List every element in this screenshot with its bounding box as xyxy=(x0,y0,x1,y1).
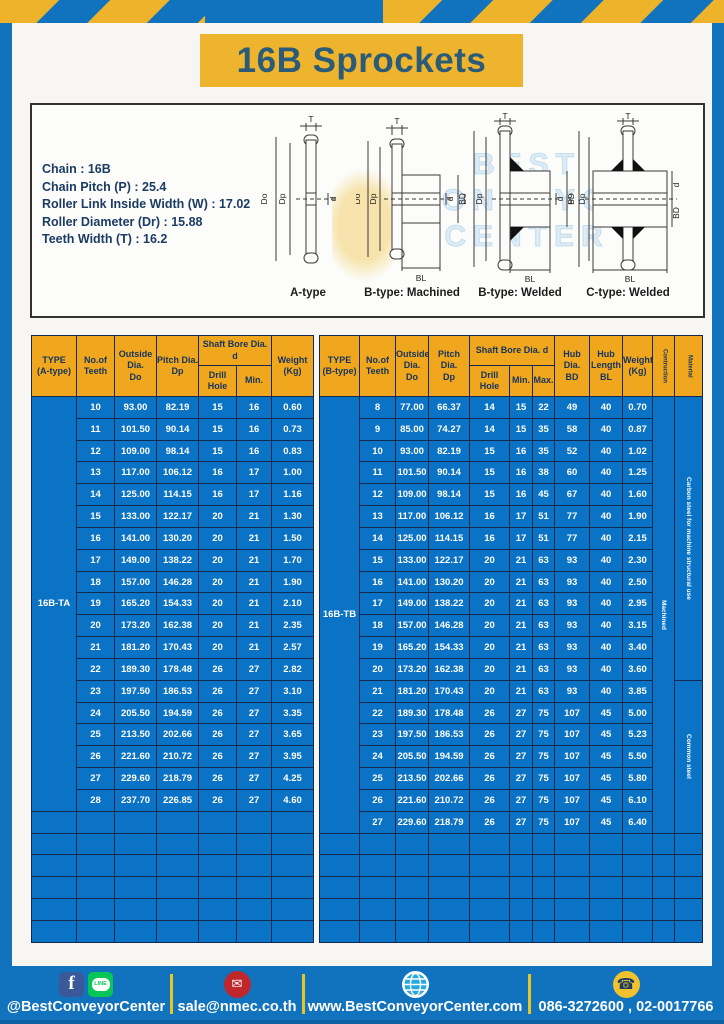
table-row: 18157.00146.2820216393403.15 xyxy=(320,615,703,637)
cell: 26 xyxy=(199,658,237,680)
cell: 3.15 xyxy=(623,615,653,637)
b-type-machined-drawing: T Do Dp d BD BL xyxy=(356,113,468,285)
type-cell: 16B-TA xyxy=(32,397,77,812)
cell: 4.25 xyxy=(272,768,314,790)
header-line: No.of xyxy=(360,355,395,366)
cell xyxy=(77,920,115,942)
cell: 14 xyxy=(77,484,115,506)
cell: 2.50 xyxy=(623,571,653,593)
cell: 186.53 xyxy=(429,724,470,746)
construction-cell: Machined xyxy=(653,397,675,834)
cell xyxy=(533,855,555,877)
cell: 16 xyxy=(199,484,237,506)
cell: 35 xyxy=(533,418,555,440)
dim-label-do: Do xyxy=(464,193,468,204)
cell: 2.15 xyxy=(623,527,653,549)
cell: 1.00 xyxy=(272,462,314,484)
cell: 205.50 xyxy=(115,702,157,724)
cell: 141.00 xyxy=(396,571,429,593)
cell: 93.00 xyxy=(396,440,429,462)
cell xyxy=(115,833,157,855)
header-line: (A-type) xyxy=(32,366,76,377)
footer-website[interactable]: www.BestConveyorCenter.com xyxy=(302,966,528,1024)
cell: 25 xyxy=(360,768,396,790)
footer-email[interactable]: ✉ sale@nmec.co.th xyxy=(172,966,302,1024)
cell: 75 xyxy=(533,811,555,833)
dim-label-t: T xyxy=(502,113,507,121)
cell xyxy=(653,877,675,899)
cell: 14 xyxy=(470,397,510,419)
cell xyxy=(533,920,555,942)
cell xyxy=(396,833,429,855)
cell: 19 xyxy=(77,593,115,615)
dim-label-bl: BL xyxy=(625,274,636,284)
cell: 26 xyxy=(470,702,510,724)
cell: 107 xyxy=(555,789,590,811)
header-line: Pitch Dia. xyxy=(429,349,469,372)
cell: 40 xyxy=(590,440,623,462)
cell: 157.00 xyxy=(115,571,157,593)
cell: 40 xyxy=(590,615,623,637)
cell: 21 xyxy=(510,680,533,702)
cell: 16 xyxy=(470,527,510,549)
cell xyxy=(590,899,623,921)
cell: 21 xyxy=(237,637,272,659)
cell: 12 xyxy=(77,440,115,462)
cell: 93 xyxy=(555,593,590,615)
cell: 16 xyxy=(77,527,115,549)
cell: 186.53 xyxy=(157,680,199,702)
cell xyxy=(653,855,675,877)
cell: 1.02 xyxy=(623,440,653,462)
cell xyxy=(533,833,555,855)
cell xyxy=(653,833,675,855)
cell: 149.00 xyxy=(396,593,429,615)
cell xyxy=(115,877,157,899)
cell: 107 xyxy=(555,724,590,746)
b-table-header: TYPE(B-type) No.ofTeeth OutsideDia.Do Pi… xyxy=(320,336,703,397)
cell: 15 xyxy=(510,418,533,440)
cell: 20 xyxy=(470,658,510,680)
cell: 82.19 xyxy=(157,397,199,419)
empty-row xyxy=(32,811,314,833)
cell: 17 xyxy=(510,527,533,549)
cell: 0.87 xyxy=(623,418,653,440)
col-header-shaft-bore: Shaft Bore Dia. d xyxy=(199,336,272,366)
header-line: Do xyxy=(115,372,156,383)
cell xyxy=(272,899,314,921)
diagram-caption: B-type: Welded xyxy=(464,287,576,299)
header-line: Hub Dia. xyxy=(555,349,589,372)
cell: 40 xyxy=(590,637,623,659)
cell: 51 xyxy=(533,527,555,549)
cell: 210.72 xyxy=(157,746,199,768)
cell xyxy=(77,877,115,899)
cell: 63 xyxy=(533,549,555,571)
cell xyxy=(429,855,470,877)
table-row: 25213.50202.66262775107455.80 xyxy=(320,768,703,790)
cell: 101.50 xyxy=(396,462,429,484)
cell: 1.70 xyxy=(272,549,314,571)
dim-label-do: Do xyxy=(259,193,269,204)
cell xyxy=(396,877,429,899)
cell: 125.00 xyxy=(396,527,429,549)
cell: 45 xyxy=(590,768,623,790)
cell: 77 xyxy=(555,527,590,549)
cell: 14 xyxy=(360,527,396,549)
cell: 1.90 xyxy=(623,506,653,528)
cell: 157.00 xyxy=(396,615,429,637)
c-type-welded-drawing: T Do Dp d BD xyxy=(569,113,687,285)
cell: 18 xyxy=(77,571,115,593)
cell: 63 xyxy=(533,615,555,637)
cell: 19 xyxy=(360,637,396,659)
cell: 21 xyxy=(510,549,533,571)
cell: 40 xyxy=(590,549,623,571)
col-header-max: Max. xyxy=(533,366,555,397)
cell xyxy=(396,855,429,877)
cell: 3.40 xyxy=(623,637,653,659)
table-row: 1093.0082.1915163552401.02 xyxy=(320,440,703,462)
phone-numbers[interactable]: 086-3272600 , 02-0017766 xyxy=(539,999,714,1015)
cell xyxy=(510,833,533,855)
cell: 189.30 xyxy=(115,658,157,680)
col-header-outside-dia: OutsideDia.Do xyxy=(115,336,157,397)
cell xyxy=(32,877,77,899)
col-header-type: TYPE(B-type) xyxy=(320,336,360,397)
cell: 93.00 xyxy=(115,397,157,419)
cell: 162.38 xyxy=(429,658,470,680)
cell: 197.50 xyxy=(396,724,429,746)
cell: 170.43 xyxy=(429,680,470,702)
cell: 45 xyxy=(590,724,623,746)
b-type-machined-diagram: T Do Dp d BD BL xyxy=(356,113,468,299)
cell xyxy=(533,899,555,921)
catalog-page: 16B Sprockets BEST CONVEYOR CENTER Chain… xyxy=(0,0,724,1024)
cell: 51 xyxy=(533,506,555,528)
cell: 93 xyxy=(555,637,590,659)
table-row: 14125.00114.1516175177402.15 xyxy=(320,527,703,549)
cell xyxy=(237,811,272,833)
cell xyxy=(470,855,510,877)
phone-icon[interactable]: ☎ xyxy=(613,971,640,998)
empty-row xyxy=(320,877,703,899)
cell xyxy=(429,899,470,921)
a-table-header: TYPE(A-type) No.ofTeeth OutsideDia.Do Pi… xyxy=(32,336,314,397)
cell xyxy=(320,877,360,899)
empty-row xyxy=(32,920,314,942)
table-row: 17149.00138.2220216393402.95 xyxy=(320,593,703,615)
cell: 154.33 xyxy=(157,593,199,615)
chain-specs: Chain : 16B Chain Pitch (P) : 25.4 Rolle… xyxy=(42,161,250,249)
header-line: TYPE xyxy=(320,355,359,366)
cell xyxy=(157,833,199,855)
cell: 6.40 xyxy=(623,811,653,833)
col-header-min: Min. xyxy=(510,366,533,397)
cell: 75 xyxy=(533,702,555,724)
cell xyxy=(272,811,314,833)
cell: 26 xyxy=(199,789,237,811)
cell: 26 xyxy=(470,768,510,790)
cell xyxy=(237,855,272,877)
cell xyxy=(77,855,115,877)
cell: 27 xyxy=(237,658,272,680)
footer-contact-bar: f LINE @BestConveyorCenter ✉ sale@nmec.c… xyxy=(0,966,724,1024)
cell: 27 xyxy=(510,724,533,746)
cell: 1.90 xyxy=(272,571,314,593)
globe-icon[interactable] xyxy=(402,971,429,998)
cell: 20 xyxy=(199,615,237,637)
cell: 1.30 xyxy=(272,506,314,528)
cell xyxy=(510,920,533,942)
cell: 20 xyxy=(470,615,510,637)
cell xyxy=(653,899,675,921)
cell: 20 xyxy=(470,637,510,659)
cell xyxy=(510,899,533,921)
cell xyxy=(157,877,199,899)
cell: 3.65 xyxy=(272,724,314,746)
cell xyxy=(590,833,623,855)
cell: 17 xyxy=(237,462,272,484)
empty-row xyxy=(320,855,703,877)
table-row: 15133.00122.1720216393402.30 xyxy=(320,549,703,571)
header-line: Teeth xyxy=(77,366,114,377)
cell: 63 xyxy=(533,658,555,680)
cell xyxy=(237,833,272,855)
cell xyxy=(623,877,653,899)
material-cell: Common steel xyxy=(675,680,703,833)
dim-label-do: Do xyxy=(356,193,362,204)
line-icon[interactable]: LINE xyxy=(88,972,113,997)
facebook-icon[interactable]: f xyxy=(59,972,84,997)
cell xyxy=(360,899,396,921)
cell: 125.00 xyxy=(115,484,157,506)
empty-row xyxy=(32,855,314,877)
cell: 15 xyxy=(199,440,237,462)
header-line: Outside xyxy=(115,349,156,360)
dim-label-t: T xyxy=(625,113,630,121)
header-line: (B-type) xyxy=(320,366,359,377)
cell: 10 xyxy=(360,440,396,462)
cell xyxy=(396,920,429,942)
cell: 45 xyxy=(590,702,623,724)
cell: 67 xyxy=(555,484,590,506)
header-line: Dia. xyxy=(396,360,428,371)
cell xyxy=(590,855,623,877)
cell: 11 xyxy=(77,418,115,440)
cell: 4.60 xyxy=(272,789,314,811)
cell: 21 xyxy=(237,615,272,637)
email-address[interactable]: sale@nmec.co.th xyxy=(178,999,297,1015)
cell xyxy=(623,920,653,942)
cell: 21 xyxy=(510,615,533,637)
cell: 27 xyxy=(237,746,272,768)
dim-label-d: d xyxy=(555,196,565,201)
bottom-edge-line xyxy=(0,1020,724,1024)
cell: 5.80 xyxy=(623,768,653,790)
footer-social[interactable]: f LINE @BestConveyorCenter xyxy=(0,966,172,1024)
cell: 3.10 xyxy=(272,680,314,702)
diagram-caption: C-type: Welded xyxy=(569,287,687,299)
cell: 26 xyxy=(199,680,237,702)
col-header-weight: Weight(Kg) xyxy=(623,336,653,397)
cell: 146.28 xyxy=(429,615,470,637)
cell: 117.00 xyxy=(396,506,429,528)
cell: 173.20 xyxy=(115,615,157,637)
table-row: 21181.20170.4320216393403.85Common steel xyxy=(320,680,703,702)
cell: 8 xyxy=(360,397,396,419)
cell xyxy=(555,899,590,921)
cell xyxy=(115,899,157,921)
cell: 21 xyxy=(237,549,272,571)
cell: 26 xyxy=(199,724,237,746)
cell xyxy=(237,899,272,921)
cell: 221.60 xyxy=(115,746,157,768)
cell: 66.37 xyxy=(429,397,470,419)
cell xyxy=(555,833,590,855)
table-row: 20173.20162.3820216393403.60 xyxy=(320,658,703,680)
cell: 27 xyxy=(510,768,533,790)
cell: 20 xyxy=(470,680,510,702)
header-line: Teeth xyxy=(360,366,395,377)
dim-label-bl: BL xyxy=(525,274,536,284)
cell: 16 xyxy=(237,440,272,462)
cell: 93 xyxy=(555,615,590,637)
cell: 5.00 xyxy=(623,702,653,724)
cell: 98.14 xyxy=(157,440,199,462)
cell: 106.12 xyxy=(429,506,470,528)
diagram-caption: A-type xyxy=(256,287,360,299)
cell: 63 xyxy=(533,680,555,702)
cell: 107 xyxy=(555,768,590,790)
cell: 10 xyxy=(77,397,115,419)
cell: 202.66 xyxy=(157,724,199,746)
cell: 20 xyxy=(360,658,396,680)
cell: 17 xyxy=(510,506,533,528)
cell: 40 xyxy=(590,593,623,615)
cell: 122.17 xyxy=(157,506,199,528)
cell: 101.50 xyxy=(115,418,157,440)
cell: 40 xyxy=(590,397,623,419)
cell: 133.00 xyxy=(396,549,429,571)
cell: 20 xyxy=(199,637,237,659)
empty-row xyxy=(320,920,703,942)
cell xyxy=(157,855,199,877)
cell xyxy=(157,811,199,833)
col-header-teeth: No.ofTeeth xyxy=(360,336,396,397)
cell xyxy=(32,920,77,942)
b-type-spec-table: TYPE(B-type) No.ofTeeth OutsideDia.Do Pi… xyxy=(319,335,703,943)
empty-row xyxy=(320,899,703,921)
cell: 16 xyxy=(510,484,533,506)
dim-label-d: d xyxy=(445,196,455,201)
cell xyxy=(320,920,360,942)
cell xyxy=(470,920,510,942)
cell: 21 xyxy=(237,527,272,549)
diagram-caption: B-type: Machined xyxy=(356,287,468,299)
cell: 107 xyxy=(555,702,590,724)
dim-label-d: d xyxy=(328,196,338,201)
cell: 45 xyxy=(590,811,623,833)
cell: 45 xyxy=(590,746,623,768)
cell: 2.57 xyxy=(272,637,314,659)
cell xyxy=(555,855,590,877)
cell: 17 xyxy=(360,593,396,615)
cell: 15 xyxy=(77,506,115,528)
header-line: Do xyxy=(396,372,428,383)
cell: 20 xyxy=(77,615,115,637)
cell xyxy=(199,811,237,833)
cell: 40 xyxy=(590,418,623,440)
cell: 114.15 xyxy=(429,527,470,549)
cell: 181.20 xyxy=(115,637,157,659)
cell: 27 xyxy=(510,811,533,833)
dim-label-dp: Dp xyxy=(368,193,378,204)
dim-label-d: d xyxy=(671,182,681,187)
col-header-weight: Weight(Kg) xyxy=(272,336,314,397)
footer-phone[interactable]: ☎ 086-3272600 , 02-0017766 xyxy=(528,966,724,1024)
cell: 189.30 xyxy=(396,702,429,724)
cell: 82.19 xyxy=(429,440,470,462)
cell: 213.50 xyxy=(396,768,429,790)
header-line: BL xyxy=(590,372,622,383)
cell: 17 xyxy=(77,549,115,571)
cell: 2.30 xyxy=(623,549,653,571)
cell: 20 xyxy=(470,571,510,593)
website-url[interactable]: www.BestConveyorCenter.com xyxy=(308,999,523,1015)
cell: 178.48 xyxy=(429,702,470,724)
cell xyxy=(360,855,396,877)
cell: 27 xyxy=(237,702,272,724)
cell xyxy=(396,899,429,921)
cell: 23 xyxy=(360,724,396,746)
cell: 2.95 xyxy=(623,593,653,615)
cell xyxy=(675,920,703,942)
cell: 20 xyxy=(199,593,237,615)
cell: 27 xyxy=(237,789,272,811)
cell: 130.20 xyxy=(157,527,199,549)
dim-label-bd: BD xyxy=(671,207,681,219)
cell: 154.33 xyxy=(429,637,470,659)
cell: 221.60 xyxy=(396,789,429,811)
cell xyxy=(590,920,623,942)
cell xyxy=(429,920,470,942)
cell xyxy=(533,877,555,899)
cell xyxy=(157,920,199,942)
cell: 60 xyxy=(555,462,590,484)
cell: 5.23 xyxy=(623,724,653,746)
cell: 21 xyxy=(237,593,272,615)
cell: 58 xyxy=(555,418,590,440)
dim-label-t: T xyxy=(308,114,313,124)
cell xyxy=(675,899,703,921)
cell: 20 xyxy=(470,593,510,615)
cell: 130.20 xyxy=(429,571,470,593)
cell: 15 xyxy=(199,418,237,440)
social-handle[interactable]: @BestConveyorCenter xyxy=(7,999,165,1015)
cell: 74.27 xyxy=(429,418,470,440)
dim-label-dp: Dp xyxy=(474,193,484,204)
email-icon[interactable]: ✉ xyxy=(224,971,251,998)
a-type-drawing: T Do Dp d xyxy=(256,113,360,285)
cell xyxy=(32,899,77,921)
cell: 5.50 xyxy=(623,746,653,768)
table-row: 23197.50186.53262775107455.23 xyxy=(320,724,703,746)
cell xyxy=(590,877,623,899)
cell: 11 xyxy=(360,462,396,484)
cell: 24 xyxy=(77,702,115,724)
cell xyxy=(77,899,115,921)
